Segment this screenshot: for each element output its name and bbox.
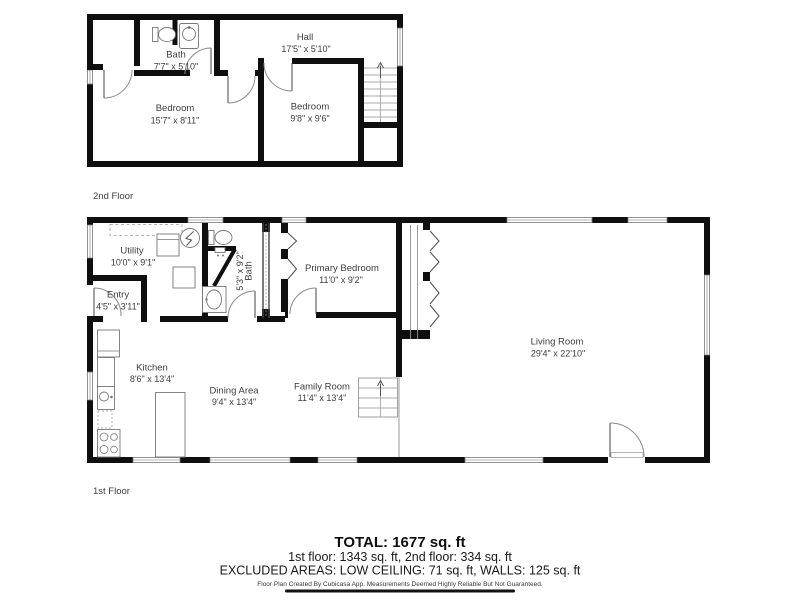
room-dims-family-room: 11'4" x 13'4": [298, 393, 347, 403]
room-label-family-room: Family Room: [294, 382, 350, 393]
toilet-icon: [209, 231, 233, 245]
second-floor-plan: Bath 7'7" x 5'10" Hall 17'5" x 5'10" Bed…: [87, 14, 403, 167]
room-label-hall: Hall: [297, 32, 313, 43]
room-label-bath-1f: Bath: [244, 261, 255, 281]
room-dims-living-room: 29'4" x 22'10": [531, 349, 585, 359]
washer-icon: [157, 234, 179, 256]
floor-plan-svg: Bath 7'7" x 5'10" Hall 17'5" x 5'10" Bed…: [0, 0, 800, 600]
dishwasher-icon: [98, 411, 112, 428]
kitchen-sink-icon: [98, 387, 115, 410]
toilet-icon: [153, 28, 176, 42]
room-dims-bedroom-right: 9'8" x 9'6": [290, 114, 329, 124]
second-floor-label: 2nd Floor: [93, 191, 133, 202]
floor-plan-page: Bath 7'7" x 5'10" Hall 17'5" x 5'10" Bed…: [0, 0, 800, 600]
footer-divider-bar: [285, 590, 515, 593]
vanity-sink-icon: [203, 287, 227, 313]
room-dims-bath-1f: 5'3" x 9'2": [235, 251, 245, 290]
first-floor-room-labels: Utility 10'0" x 9'1" Entry 4'5" x 3'11" …: [96, 246, 585, 408]
room-label-entry: Entry: [107, 290, 129, 301]
excluded-areas-text: EXCLUDED AREAS: LOW CEILING: 71 sq. ft, …: [220, 564, 581, 578]
room-label-utility: Utility: [120, 246, 143, 257]
primary-bedroom-closet-doors: [288, 233, 297, 279]
room-label-living-room: Living Room: [531, 337, 584, 348]
room-label-bedroom-right: Bedroom: [291, 102, 330, 113]
faucet-icon: [215, 248, 225, 257]
room-dims-dining-area: 9'4" x 13'4": [212, 397, 256, 407]
disclaimer-text: Floor Plan Created By Cubicasa App. Meas…: [257, 581, 543, 588]
kitchen-counter: [98, 358, 115, 387]
second-floor-interior-walls: [87, 14, 403, 167]
second-floor-room-labels: Bath 7'7" x 5'10" Hall 17'5" x 5'10" Bed…: [151, 32, 331, 126]
room-label-kitchen: Kitchen: [136, 363, 168, 374]
area-summary: TOTAL: 1677 sq. ft 1st floor: 1343 sq. f…: [220, 534, 581, 593]
room-label-primary-bedroom: Primary Bedroom: [305, 263, 379, 274]
room-label-dining-area: Dining Area: [209, 386, 259, 397]
refrigerator-icon: [98, 330, 120, 357]
kitchen-island: [156, 393, 186, 458]
utility-cabinet-icon: [173, 267, 195, 288]
room-dims-primary-bedroom: 11'0" x 9'2": [319, 275, 363, 285]
living-room-closet: [411, 225, 440, 339]
first-floor-plan: Utility 10'0" x 9'1" Entry 4'5" x 3'11" …: [87, 217, 710, 463]
second-floor-stairs: [364, 63, 397, 123]
room-dims-hall: 17'5" x 5'10": [281, 44, 330, 54]
bath-diagonal-wall: [214, 249, 235, 286]
sink-icon: [180, 24, 199, 49]
stove-icon: [98, 430, 121, 458]
first-floor-label: 1st Floor: [93, 486, 130, 497]
room-dims-bedroom-left: 15'7" x 8'11": [151, 116, 200, 126]
total-area-text: TOTAL: 1677 sq. ft: [334, 534, 465, 551]
room-label-bedroom-left: Bedroom: [156, 103, 195, 114]
room-dims-entry: 4'5" x 3'11": [96, 302, 140, 312]
kitchen-fixtures: [98, 330, 186, 457]
room-dims-bath-2f: 7'7" x 5'10": [154, 62, 198, 72]
first-floor-stairs: [359, 378, 398, 417]
living-room-entry-door: [610, 423, 644, 458]
room-dims-utility: 10'0" x 9'1": [111, 258, 155, 268]
room-label-bath-2f: Bath: [166, 50, 186, 61]
floor-breakdown-text: 1st floor: 1343 sq. ft, 2nd floor: 334 s…: [288, 550, 512, 564]
room-dims-kitchen: 8'6" x 13'4": [130, 374, 174, 384]
water-heater-icon: [181, 229, 200, 248]
